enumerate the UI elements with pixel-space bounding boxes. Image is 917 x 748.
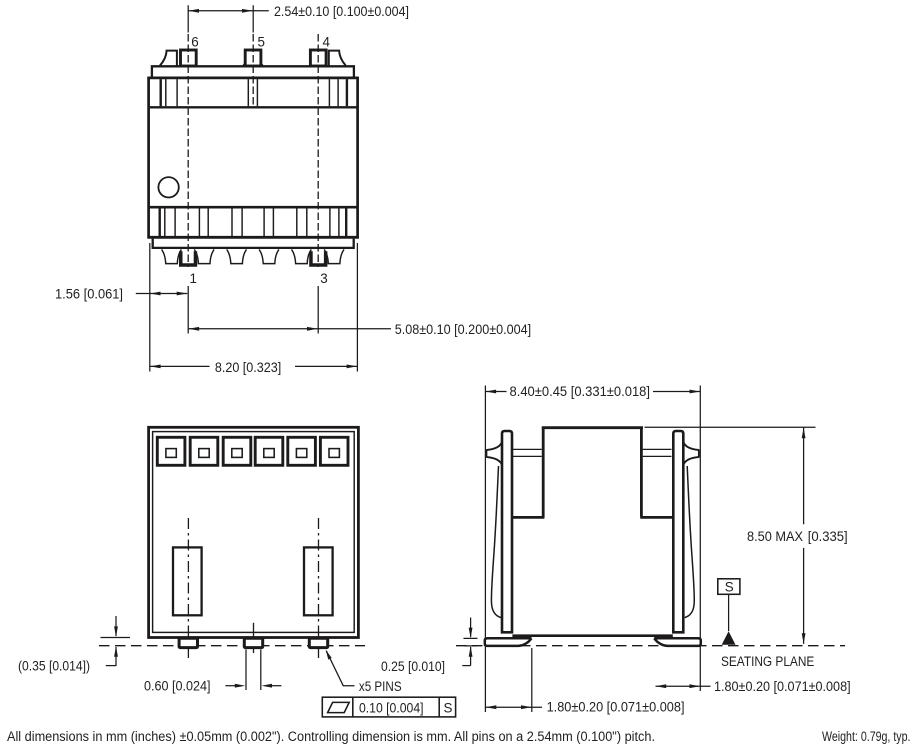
svg-text:4: 4 bbox=[323, 34, 331, 49]
svg-text:(0.35 [0.014]): (0.35 [0.014]) bbox=[18, 658, 90, 673]
svg-text:Weight: 0.79g, typ.: Weight: 0.79g, typ. bbox=[822, 729, 911, 744]
svg-text:S: S bbox=[444, 700, 453, 715]
svg-text:8.20 [0.323]: 8.20 [0.323] bbox=[215, 360, 281, 375]
svg-text:0.25 [0.010]: 0.25 [0.010] bbox=[381, 659, 445, 674]
svg-text:SEATING PLANE: SEATING PLANE bbox=[721, 654, 814, 669]
svg-text:3: 3 bbox=[320, 271, 327, 286]
svg-text:x5 PINS: x5 PINS bbox=[359, 679, 402, 694]
svg-text:8.50 MAX: 8.50 MAX bbox=[747, 529, 803, 544]
svg-text:1: 1 bbox=[190, 271, 197, 286]
svg-text:1.56 [0.061]: 1.56 [0.061] bbox=[55, 286, 123, 301]
svg-text:5.08±0.10 [0.200±0.004]: 5.08±0.10 [0.200±0.004] bbox=[395, 322, 532, 337]
svg-text:6: 6 bbox=[191, 34, 198, 49]
svg-text:0.10 [0.004]: 0.10 [0.004] bbox=[359, 700, 424, 715]
svg-text:2.54±0.10 [0.100±0.004]: 2.54±0.10 [0.100±0.004] bbox=[274, 4, 409, 19]
svg-text:0.60 [0.024]: 0.60 [0.024] bbox=[144, 679, 211, 694]
svg-text:S: S bbox=[725, 579, 734, 594]
svg-text:All dimensions in mm (inches): All dimensions in mm (inches) ±0.05mm (0… bbox=[7, 729, 655, 744]
svg-text:1.80±0.20 [0.071±0.008]: 1.80±0.20 [0.071±0.008] bbox=[547, 699, 685, 714]
svg-text:5: 5 bbox=[258, 34, 265, 49]
svg-text:8.40±0.45 [0.331±0.018]: 8.40±0.45 [0.331±0.018] bbox=[510, 384, 651, 399]
svg-text:[0.335]: [0.335] bbox=[808, 529, 848, 544]
svg-text:1.80±0.20 [0.071±0.008]: 1.80±0.20 [0.071±0.008] bbox=[714, 679, 851, 694]
